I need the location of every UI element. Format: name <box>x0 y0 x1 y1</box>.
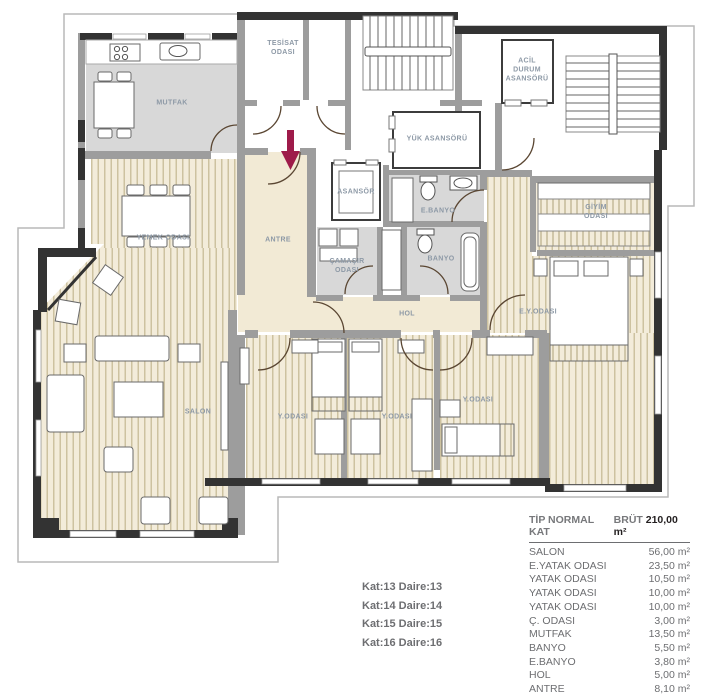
room-salon <box>40 248 230 534</box>
label-yodasi2: Y.ODASI <box>382 412 412 421</box>
legend-gross: BRÜT 210,00 m² <box>614 514 690 538</box>
legend-row: BANYO5,50 m² <box>529 642 690 656</box>
label-camasir: ÇAMAŞIR ODASI <box>329 257 364 275</box>
legend-room-name: ANTRE <box>529 683 565 697</box>
legend-type-label: TİP NORMAL KAT <box>529 514 614 538</box>
legend-room-area: 8,10 m² <box>654 683 690 697</box>
legend-room-name: E.YATAK ODASI <box>529 560 607 574</box>
label-yemek: YEMEK ODASI <box>137 233 190 242</box>
legend-room-name: HOL <box>529 669 551 683</box>
legend-row: YATAK ODASI10,00 m² <box>529 587 690 601</box>
legend-room-area: 3,00 m² <box>654 615 690 629</box>
label-eyodasi: E.Y.ODASI <box>519 307 557 316</box>
unit-line: Kat:14 Daire:14 <box>362 597 442 616</box>
legend-row: YATAK ODASI10,50 m² <box>529 573 690 587</box>
legend-room-name: YATAK ODASI <box>529 601 597 615</box>
legend-row: Ç. ODASI3,00 m² <box>529 615 690 629</box>
staircase-right <box>566 54 660 134</box>
room-tesisat <box>245 22 303 100</box>
legend-room-area: 13,50 m² <box>649 628 690 642</box>
unit-line: Kat:16 Daire:16 <box>362 634 442 653</box>
legend-row: E.YATAK ODASI23,50 m² <box>529 560 690 574</box>
legend-room-name: BANYO <box>529 642 566 656</box>
unit-list: Kat:13 Daire:13Kat:14 Daire:14Kat:15 Dai… <box>362 578 442 652</box>
legend-divider <box>529 542 690 543</box>
legend-room-name: E.BANYO <box>529 656 576 670</box>
legend-row: ANTRE8,10 m² <box>529 683 690 697</box>
legend-room-area: 3,80 m² <box>654 656 690 670</box>
floor-plan: MUTFAK TESİSAT ODASI ACİL DURUM ASANSÖRÜ… <box>0 0 708 575</box>
label-hol: HOL <box>399 309 415 318</box>
label-mutfak: MUTFAK <box>156 98 187 107</box>
legend-room-name: Ç. ODASI <box>529 615 575 629</box>
area-legend: TİP NORMAL KAT BRÜT 210,00 m² SALON56,00… <box>529 514 690 697</box>
room-ebanyo <box>388 175 484 227</box>
label-asansor: ASANSÖR <box>337 187 374 196</box>
legend-room-name: SALON <box>529 546 565 560</box>
label-banyo: BANYO <box>427 254 454 263</box>
legend-room-area: 10,00 m² <box>649 587 690 601</box>
legend-room-area: 10,50 m² <box>649 573 690 587</box>
room-yodasi1 <box>246 335 341 480</box>
label-yodasi3: Y.ODASI <box>463 395 493 404</box>
shower <box>382 230 401 290</box>
staircase-middle <box>363 16 453 90</box>
label-giyim: GİYİM ODASI <box>584 203 608 221</box>
label-yodasi1: Y.ODASI <box>278 412 308 421</box>
room-eyodasi <box>532 256 654 333</box>
legend-header: TİP NORMAL KAT BRÜT 210,00 m² <box>529 514 690 538</box>
legend-row: MUTFAK13,50 m² <box>529 628 690 642</box>
label-antre: ANTRE <box>265 235 291 244</box>
label-salon: SALON <box>185 407 211 416</box>
room-yodasi3 <box>440 335 539 478</box>
legend-gross-label: BRÜT <box>614 514 643 526</box>
room-mutfak <box>86 40 237 153</box>
room-eyodasi-lower <box>549 333 654 484</box>
legend-row: HOL5,00 m² <box>529 669 690 683</box>
legend-room-name: YATAK ODASI <box>529 573 597 587</box>
label-tesisat: TESİSAT ODASI <box>267 39 299 57</box>
floor-plan-page: MUTFAK TESİSAT ODASI ACİL DURUM ASANSÖRÜ… <box>0 0 708 700</box>
legend-room-name: YATAK ODASI <box>529 587 597 601</box>
label-acil: ACİL DURUM ASANSÖRÜ <box>506 56 549 83</box>
legend-room-area: 56,00 m² <box>649 546 690 560</box>
legend-rows: SALON56,00 m²E.YATAK ODASI23,50 m²YATAK … <box>529 546 690 697</box>
label-ebanyo: E.BANYO <box>421 206 455 215</box>
room-hol <box>245 297 480 332</box>
unit-line: Kat:15 Daire:15 <box>362 615 442 634</box>
unit-line: Kat:13 Daire:13 <box>362 578 442 597</box>
legend-room-area: 23,50 m² <box>649 560 690 574</box>
legend-row: YATAK ODASI10,00 m² <box>529 601 690 615</box>
legend-room-area: 10,00 m² <box>649 601 690 615</box>
legend-room-name: MUTFAK <box>529 628 572 642</box>
room-yodasi2 <box>347 335 434 480</box>
legend-room-area: 5,50 m² <box>654 642 690 656</box>
legend-room-area: 5,00 m² <box>654 669 690 683</box>
legend-row: SALON56,00 m² <box>529 546 690 560</box>
legend-row: E.BANYO3,80 m² <box>529 656 690 670</box>
label-yuk: YÜK ASANSÖRÜ <box>407 134 468 143</box>
